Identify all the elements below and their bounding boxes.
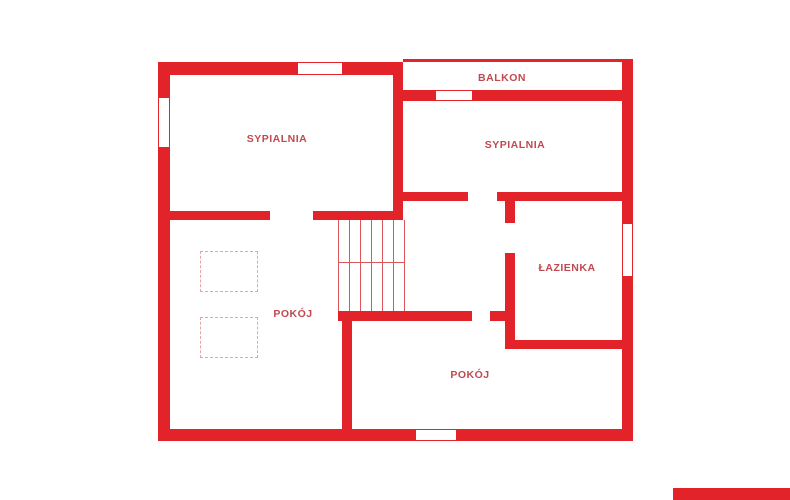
room-label-pokoj-left: POKÓJ xyxy=(273,308,312,320)
wall-bathroom-bottom xyxy=(505,340,633,349)
stair-tread-line xyxy=(338,220,339,311)
floor-plan: SYPIALNIA BALKON SYPIALNIA ŁAZIENKA POKÓ… xyxy=(0,0,790,500)
wall-bathroom-left-lower xyxy=(505,253,515,348)
room-label-lazienka: ŁAZIENKA xyxy=(538,262,595,274)
wall-bathroom-top xyxy=(497,192,622,201)
window-right-wall xyxy=(622,223,633,277)
wall-balcony-bottom-right xyxy=(473,90,622,101)
stair-tread-line xyxy=(404,220,405,311)
room-label-pokoj-bottom: POKÓJ xyxy=(450,369,489,381)
wall-balcony-bottom-left xyxy=(393,90,435,101)
wall-room-divider-lower xyxy=(342,311,352,441)
window-top-wall xyxy=(297,62,343,75)
window-left-wall xyxy=(158,97,170,148)
balcony-edge-line xyxy=(403,59,633,62)
wall-stairs-bottom xyxy=(338,311,472,321)
wall-left-bedroom-bottom-a xyxy=(158,211,270,220)
wardrobe-outline-top xyxy=(200,251,258,292)
stair-landing-line xyxy=(338,262,405,263)
outer-wall-bottom-left xyxy=(158,429,415,441)
stair-tread-line xyxy=(349,220,350,311)
outer-wall-bottom-right xyxy=(457,429,633,441)
room-label-sypialnia-right: SYPIALNIA xyxy=(485,139,546,151)
staircase xyxy=(338,220,405,311)
room-label-balkon: BALKON xyxy=(478,72,526,84)
wall-door-stub xyxy=(490,311,510,321)
window-balcony-door xyxy=(435,90,473,101)
wall-bathroom-left-stub xyxy=(505,192,515,223)
wall-left-bedroom-bottom-b xyxy=(313,211,403,220)
window-bottom-wall xyxy=(415,429,457,441)
footer-accent-bar xyxy=(673,488,790,500)
stair-tread-line xyxy=(393,220,394,311)
wardrobe-outline-bottom xyxy=(200,317,258,358)
outer-wall-right-lower xyxy=(622,277,633,441)
outer-wall-top-left xyxy=(158,62,297,75)
room-label-sypialnia-left: SYPIALNIA xyxy=(247,133,308,145)
outer-wall-right-upper xyxy=(622,59,633,223)
stair-tread-line xyxy=(371,220,372,311)
outer-wall-left-lower xyxy=(158,148,170,441)
wall-right-bedroom-bottom-a xyxy=(393,192,468,201)
stair-tread-line xyxy=(382,220,383,311)
stair-tread-line xyxy=(360,220,361,311)
